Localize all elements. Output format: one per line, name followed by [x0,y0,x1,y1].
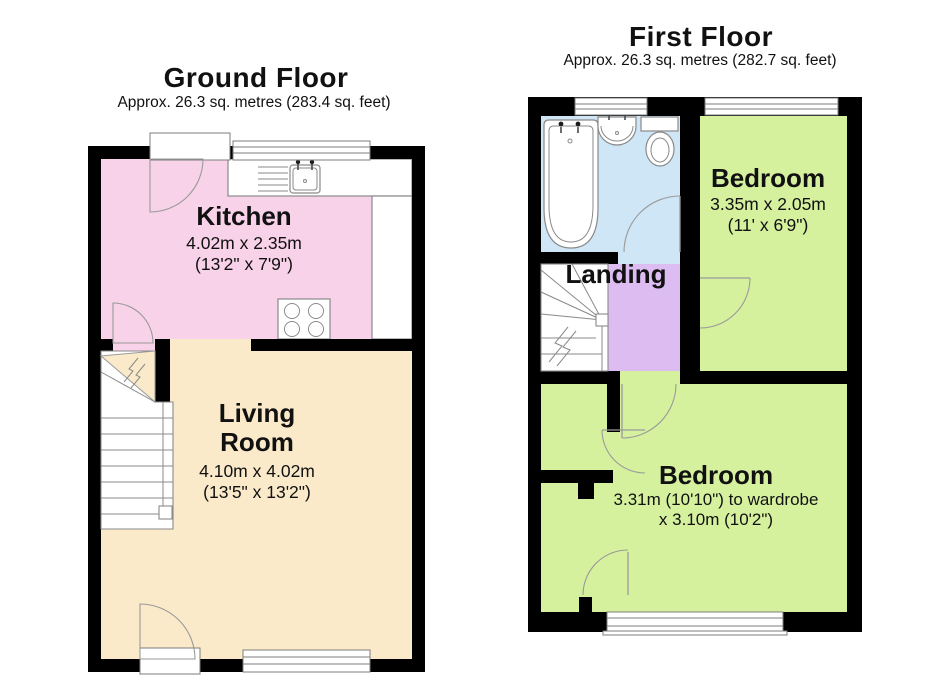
kitchen-worktop [372,196,412,339]
bathroom-window [575,98,647,115]
living-room-size-metric: 4.10m x 4.02m [199,461,315,481]
living-doorway-floor [170,339,251,351]
living-room-size-imperial: (13'5" x 13'2") [203,482,311,502]
bedroom-bottom-window [603,612,787,635]
kitchen-size-metric: 4.02m x 2.35m [186,233,302,253]
wall [251,339,412,351]
first-floor-title: First Floor [629,21,773,53]
hob-icon [278,299,330,339]
wall [684,371,847,384]
bedroom-bottom-size-metric: 3.31m (10'10") to wardrobe [614,490,819,510]
bedroom-bottom-doorway-floor [620,371,684,384]
wall [155,339,170,402]
bedroom-top-window [705,98,838,115]
bathtub-icon [544,120,598,248]
wall [607,384,620,432]
wall [88,146,101,672]
bedroom-top-label: Bedroom [711,164,825,194]
wall [847,97,862,632]
wall [680,116,700,384]
wardrobe-wall [578,483,594,499]
wall [412,146,425,672]
bedroom-top-size-metric: 3.35m x 2.05m [710,194,826,214]
wardrobe-wall [541,470,613,483]
newel-post [596,314,608,326]
landing-label: Landing [565,260,666,290]
bedroom-bottom-label: Bedroom [659,461,773,491]
ground-floor-title: Ground Floor [164,62,349,94]
floorplan-page: Ground Floor Approx. 26.3 sq. metres (28… [0,0,950,690]
kitchen-label: Kitchen [196,202,291,232]
living-room-window [243,650,370,672]
newel-post [159,506,172,519]
first-floor-subtitle: Approx. 26.3 sq. metres (282.7 sq. feet) [563,52,836,70]
living-room-label: Living Room [197,399,317,457]
kitchen-window [233,141,370,160]
bedroom-top-size-imperial: (11' x 6'9") [728,215,809,235]
bedroom-bottom-size-imperial: x 3.10m (10'2") [659,510,773,530]
wall [101,339,113,351]
kitchen-doorway-floor [113,339,155,351]
wall [541,371,620,384]
kitchen-size-imperial: (13'2" x 7'9") [195,254,293,274]
wall [579,597,592,612]
bedroom-top-floor [700,116,847,371]
wall [528,97,541,632]
ground-floor-subtitle: Approx. 26.3 sq. metres (283.4 sq. feet) [117,94,390,112]
